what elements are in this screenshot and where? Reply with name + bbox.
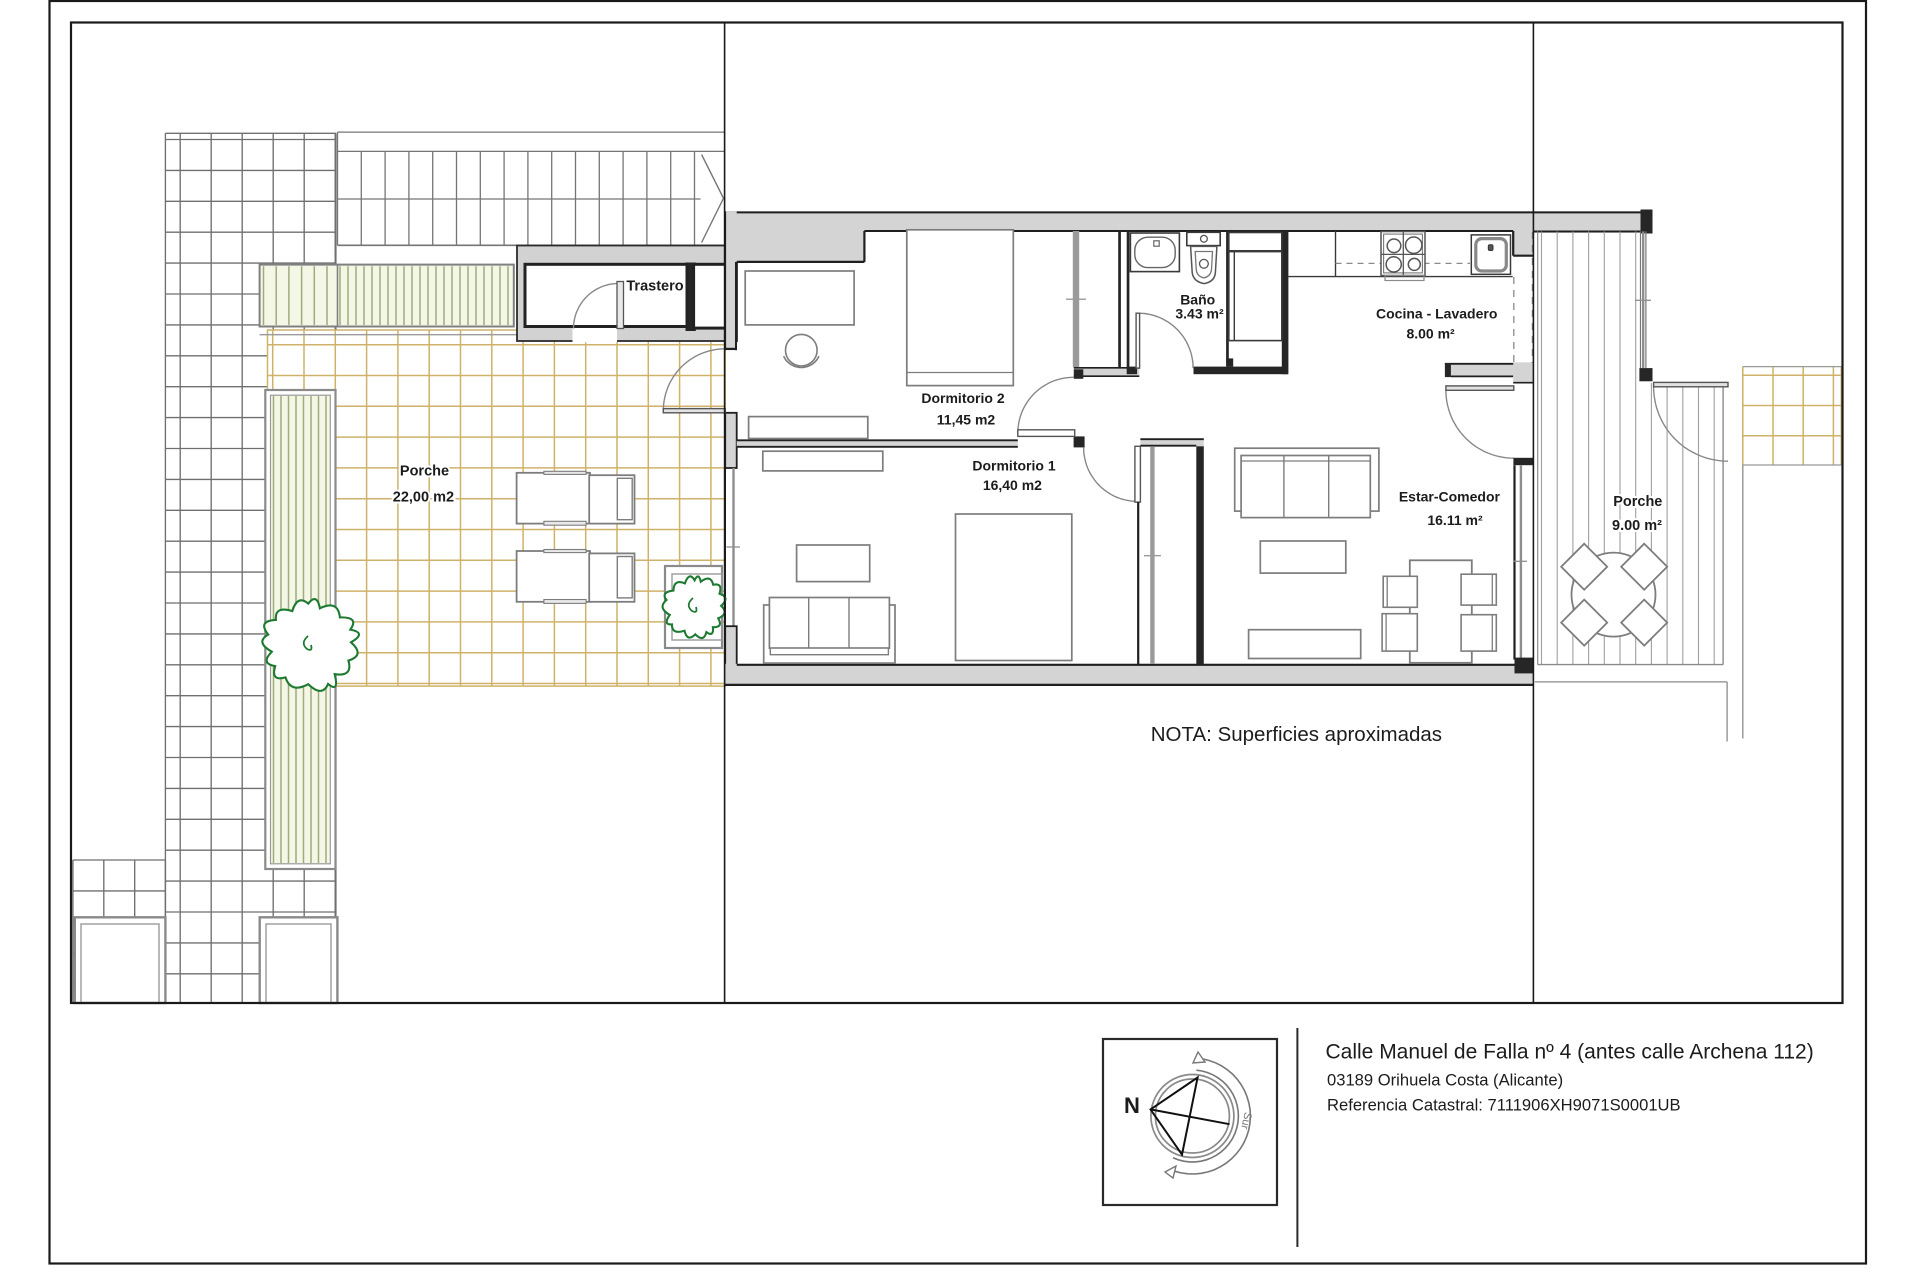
- svg-text:03189 Orihuela Costa (Alicante: 03189 Orihuela Costa (Alicante): [1327, 1071, 1563, 1090]
- svg-text:8.00 m²: 8.00 m²: [1406, 326, 1455, 342]
- svg-text:11,45 m2: 11,45 m2: [937, 412, 996, 428]
- svg-text:16.11 m²: 16.11 m²: [1427, 512, 1483, 528]
- svg-text:Dormitorio 2: Dormitorio 2: [921, 390, 1004, 406]
- svg-text:N: N: [1124, 1093, 1140, 1118]
- svg-text:NOTA: Superficies aproximadas: NOTA: Superficies aproximadas: [1151, 723, 1442, 746]
- svg-text:Porche: Porche: [1613, 494, 1662, 510]
- svg-text:Cocina - Lavadero: Cocina - Lavadero: [1376, 306, 1497, 322]
- svg-text:16,40 m2: 16,40 m2: [983, 477, 1042, 493]
- svg-text:Calle Manuel de Falla nº 4 (an: Calle Manuel de Falla nº 4 (antes calle …: [1326, 1041, 1814, 1064]
- svg-text:22,00 m2: 22,00 m2: [393, 489, 454, 505]
- svg-text:Referencia Catastral: 7111906X: Referencia Catastral: 7111906XH9071S0001…: [1327, 1096, 1681, 1115]
- svg-text:9.00 m²: 9.00 m²: [1612, 518, 1662, 534]
- svg-text:Porche: Porche: [400, 463, 449, 479]
- svg-text:Trastero: Trastero: [626, 278, 683, 294]
- svg-text:Dormitorio 1: Dormitorio 1: [972, 457, 1055, 473]
- svg-text:Estar-Comedor: Estar-Comedor: [1399, 489, 1501, 505]
- svg-text:3.43 m²: 3.43 m²: [1175, 305, 1224, 321]
